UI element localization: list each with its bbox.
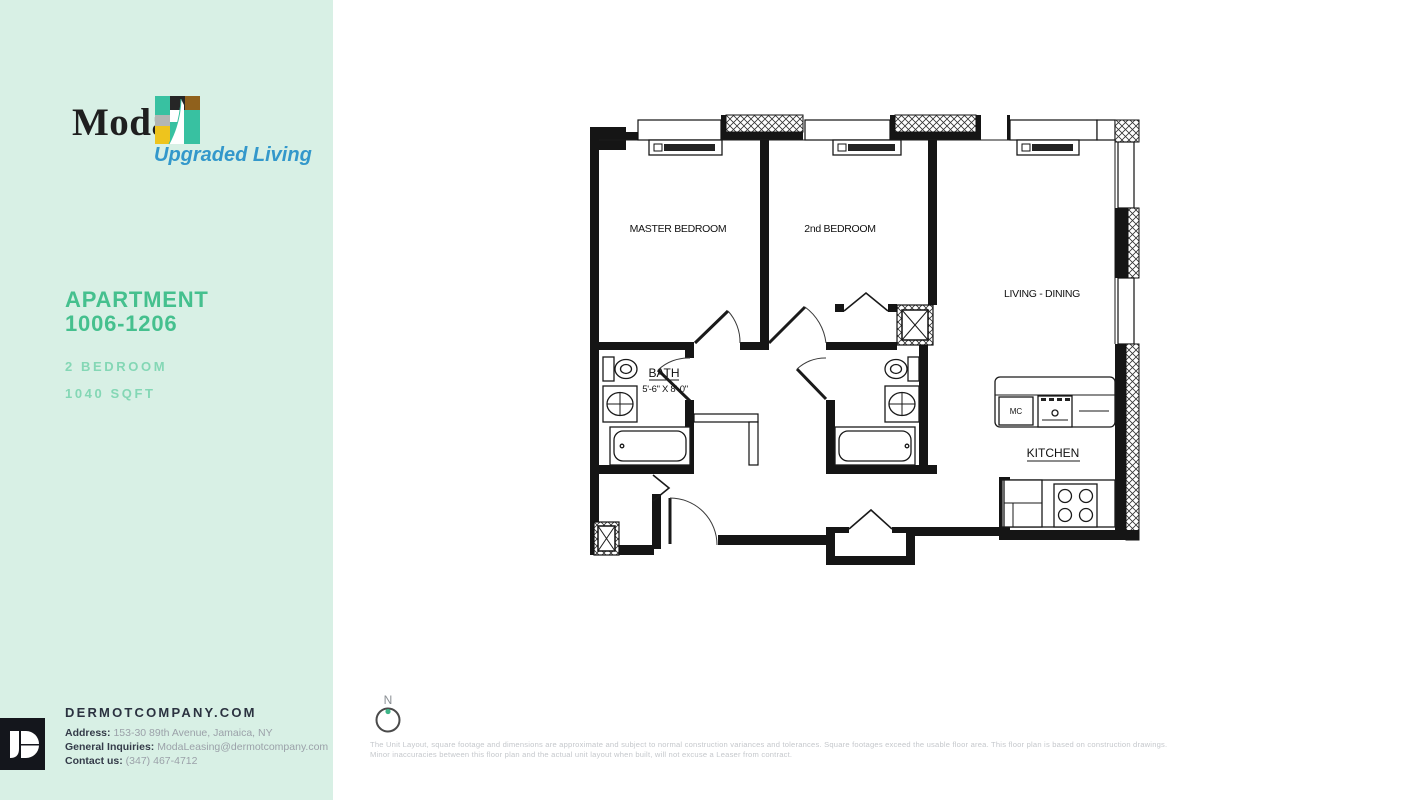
toilet-icon bbox=[885, 357, 919, 381]
inquiries-value: ModaLeasing@dermotcompany.com bbox=[157, 741, 328, 753]
room-label-kitchen: KITCHEN bbox=[1027, 446, 1080, 460]
closet-door-entry bbox=[849, 510, 892, 529]
radiator bbox=[1017, 140, 1079, 155]
kitchen-counter-bottom bbox=[1002, 480, 1115, 527]
compass-label: N bbox=[384, 693, 393, 707]
window bbox=[805, 120, 890, 140]
compass-icon: N bbox=[368, 692, 408, 736]
room-label-second-bedroom: 2nd BEDROOM bbox=[804, 223, 875, 235]
moda-logo-icon bbox=[155, 95, 201, 145]
apartment-title-line2: 1006-1206 bbox=[65, 312, 209, 336]
apartment-title-line1: APARTMENT bbox=[65, 288, 209, 312]
hatched-wall bbox=[1128, 208, 1139, 278]
hatched-wall bbox=[1126, 344, 1139, 540]
dermot-logo-icon bbox=[0, 718, 45, 770]
contact-line: Contact us: (347) 467-4712 bbox=[65, 754, 328, 768]
sink-icon bbox=[603, 386, 637, 422]
bath-dimensions: 5'-6" X 8'-0" bbox=[642, 384, 688, 395]
shaft bbox=[897, 305, 933, 345]
contact-value: (347) 467-4712 bbox=[126, 755, 198, 767]
radiator bbox=[833, 140, 901, 155]
entry-door bbox=[670, 498, 717, 545]
door-bath-2 bbox=[797, 358, 826, 399]
window bbox=[638, 120, 721, 140]
page: Moda Upgraded Living APARTMENT 1006-1206… bbox=[0, 0, 1421, 800]
compass-north-dot bbox=[385, 709, 390, 714]
toilet-icon bbox=[603, 357, 637, 381]
footer-website: DERMOTCOMPANY.COM bbox=[65, 705, 257, 720]
apartment-title: APARTMENT 1006-1206 bbox=[65, 288, 209, 336]
sidebar: Moda Upgraded Living APARTMENT 1006-1206… bbox=[0, 0, 333, 800]
hatched-wall bbox=[726, 115, 803, 132]
bathtub-icon bbox=[610, 427, 690, 465]
window bbox=[1118, 142, 1134, 208]
room-label-living-dining: LIVING - DINING bbox=[1004, 288, 1080, 300]
inquiries-line: General Inquiries: ModaLeasing@dermotcom… bbox=[65, 740, 328, 754]
radiator bbox=[649, 140, 722, 155]
door-second-bedroom bbox=[769, 307, 826, 343]
inquiries-label: General Inquiries: bbox=[65, 741, 154, 753]
address-value: 153-30 89th Avenue, Jamaica, NY bbox=[113, 727, 272, 739]
microwave-icon: MC bbox=[999, 397, 1033, 425]
door-master-bedroom bbox=[695, 311, 740, 343]
address-label: Address: bbox=[65, 727, 111, 739]
closet-door-second-bedroom bbox=[844, 293, 888, 311]
bathtub-icon bbox=[835, 427, 915, 465]
interior-walls bbox=[590, 140, 937, 549]
contact-label: Contact us: bbox=[65, 755, 123, 767]
brand-tagline: Upgraded Living bbox=[154, 144, 312, 167]
kitchen-counter-top: MC bbox=[995, 377, 1115, 427]
window bbox=[1097, 120, 1115, 140]
window bbox=[1118, 278, 1134, 344]
cooktop-icon bbox=[1054, 484, 1097, 527]
stove-icon bbox=[1038, 396, 1072, 427]
bedroom-count: 2 BEDROOM bbox=[65, 359, 167, 374]
room-label-bath: BATH bbox=[648, 366, 679, 380]
hatched-wall bbox=[895, 115, 976, 132]
refrigerator-icon bbox=[1004, 480, 1042, 527]
microwave-label: MC bbox=[1010, 407, 1023, 416]
shaft bbox=[594, 522, 619, 555]
room-label-master-bedroom: MASTER BEDROOM bbox=[630, 223, 727, 235]
floorplan: MC bbox=[583, 112, 1143, 572]
disclaimer: The Unit Layout, square footage and dime… bbox=[370, 740, 1210, 760]
address-line: Address: 153-30 89th Avenue, Jamaica, NY bbox=[65, 726, 328, 740]
disclaimer-line2: Minor inaccuracies between this floor pl… bbox=[370, 750, 1210, 760]
hatched-wall bbox=[1115, 120, 1139, 142]
disclaimer-line1: The Unit Layout, square footage and dime… bbox=[370, 740, 1210, 750]
contact-block: Address: 153-30 89th Avenue, Jamaica, NY… bbox=[65, 726, 328, 768]
window bbox=[1010, 120, 1097, 140]
area-sqft: 1040 SQFT bbox=[65, 386, 156, 401]
sink-icon bbox=[885, 386, 919, 422]
